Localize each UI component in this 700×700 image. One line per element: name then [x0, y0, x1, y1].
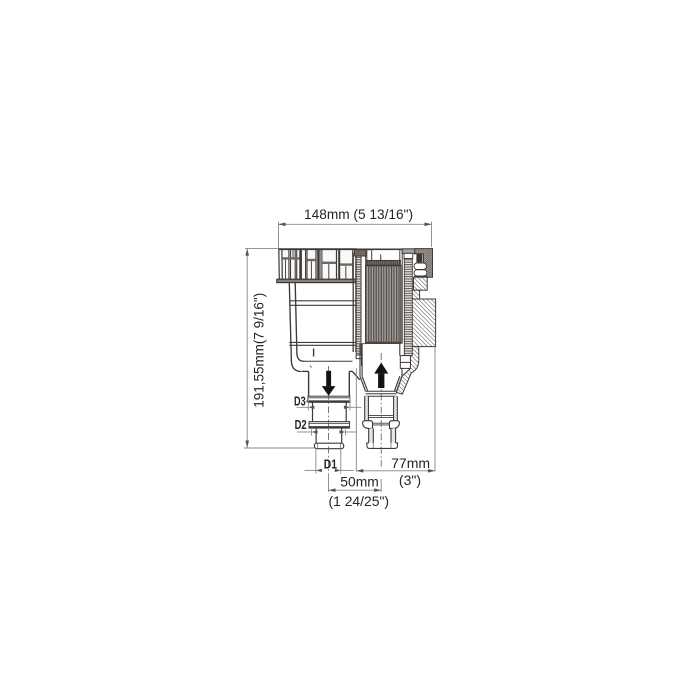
svg-text:77mm: 77mm: [391, 455, 430, 471]
svg-text:(3"): (3"): [399, 472, 421, 488]
svg-text:D3: D3: [294, 395, 306, 409]
svg-text:148mm (5 13/16"): 148mm (5 13/16"): [304, 206, 413, 222]
svg-text:50mm: 50mm: [340, 473, 379, 489]
svg-text:191,55mm(7 9/16"): 191,55mm(7 9/16"): [250, 293, 266, 408]
svg-text:D2: D2: [295, 418, 307, 432]
svg-text:(1 24/25"): (1 24/25"): [329, 493, 390, 509]
